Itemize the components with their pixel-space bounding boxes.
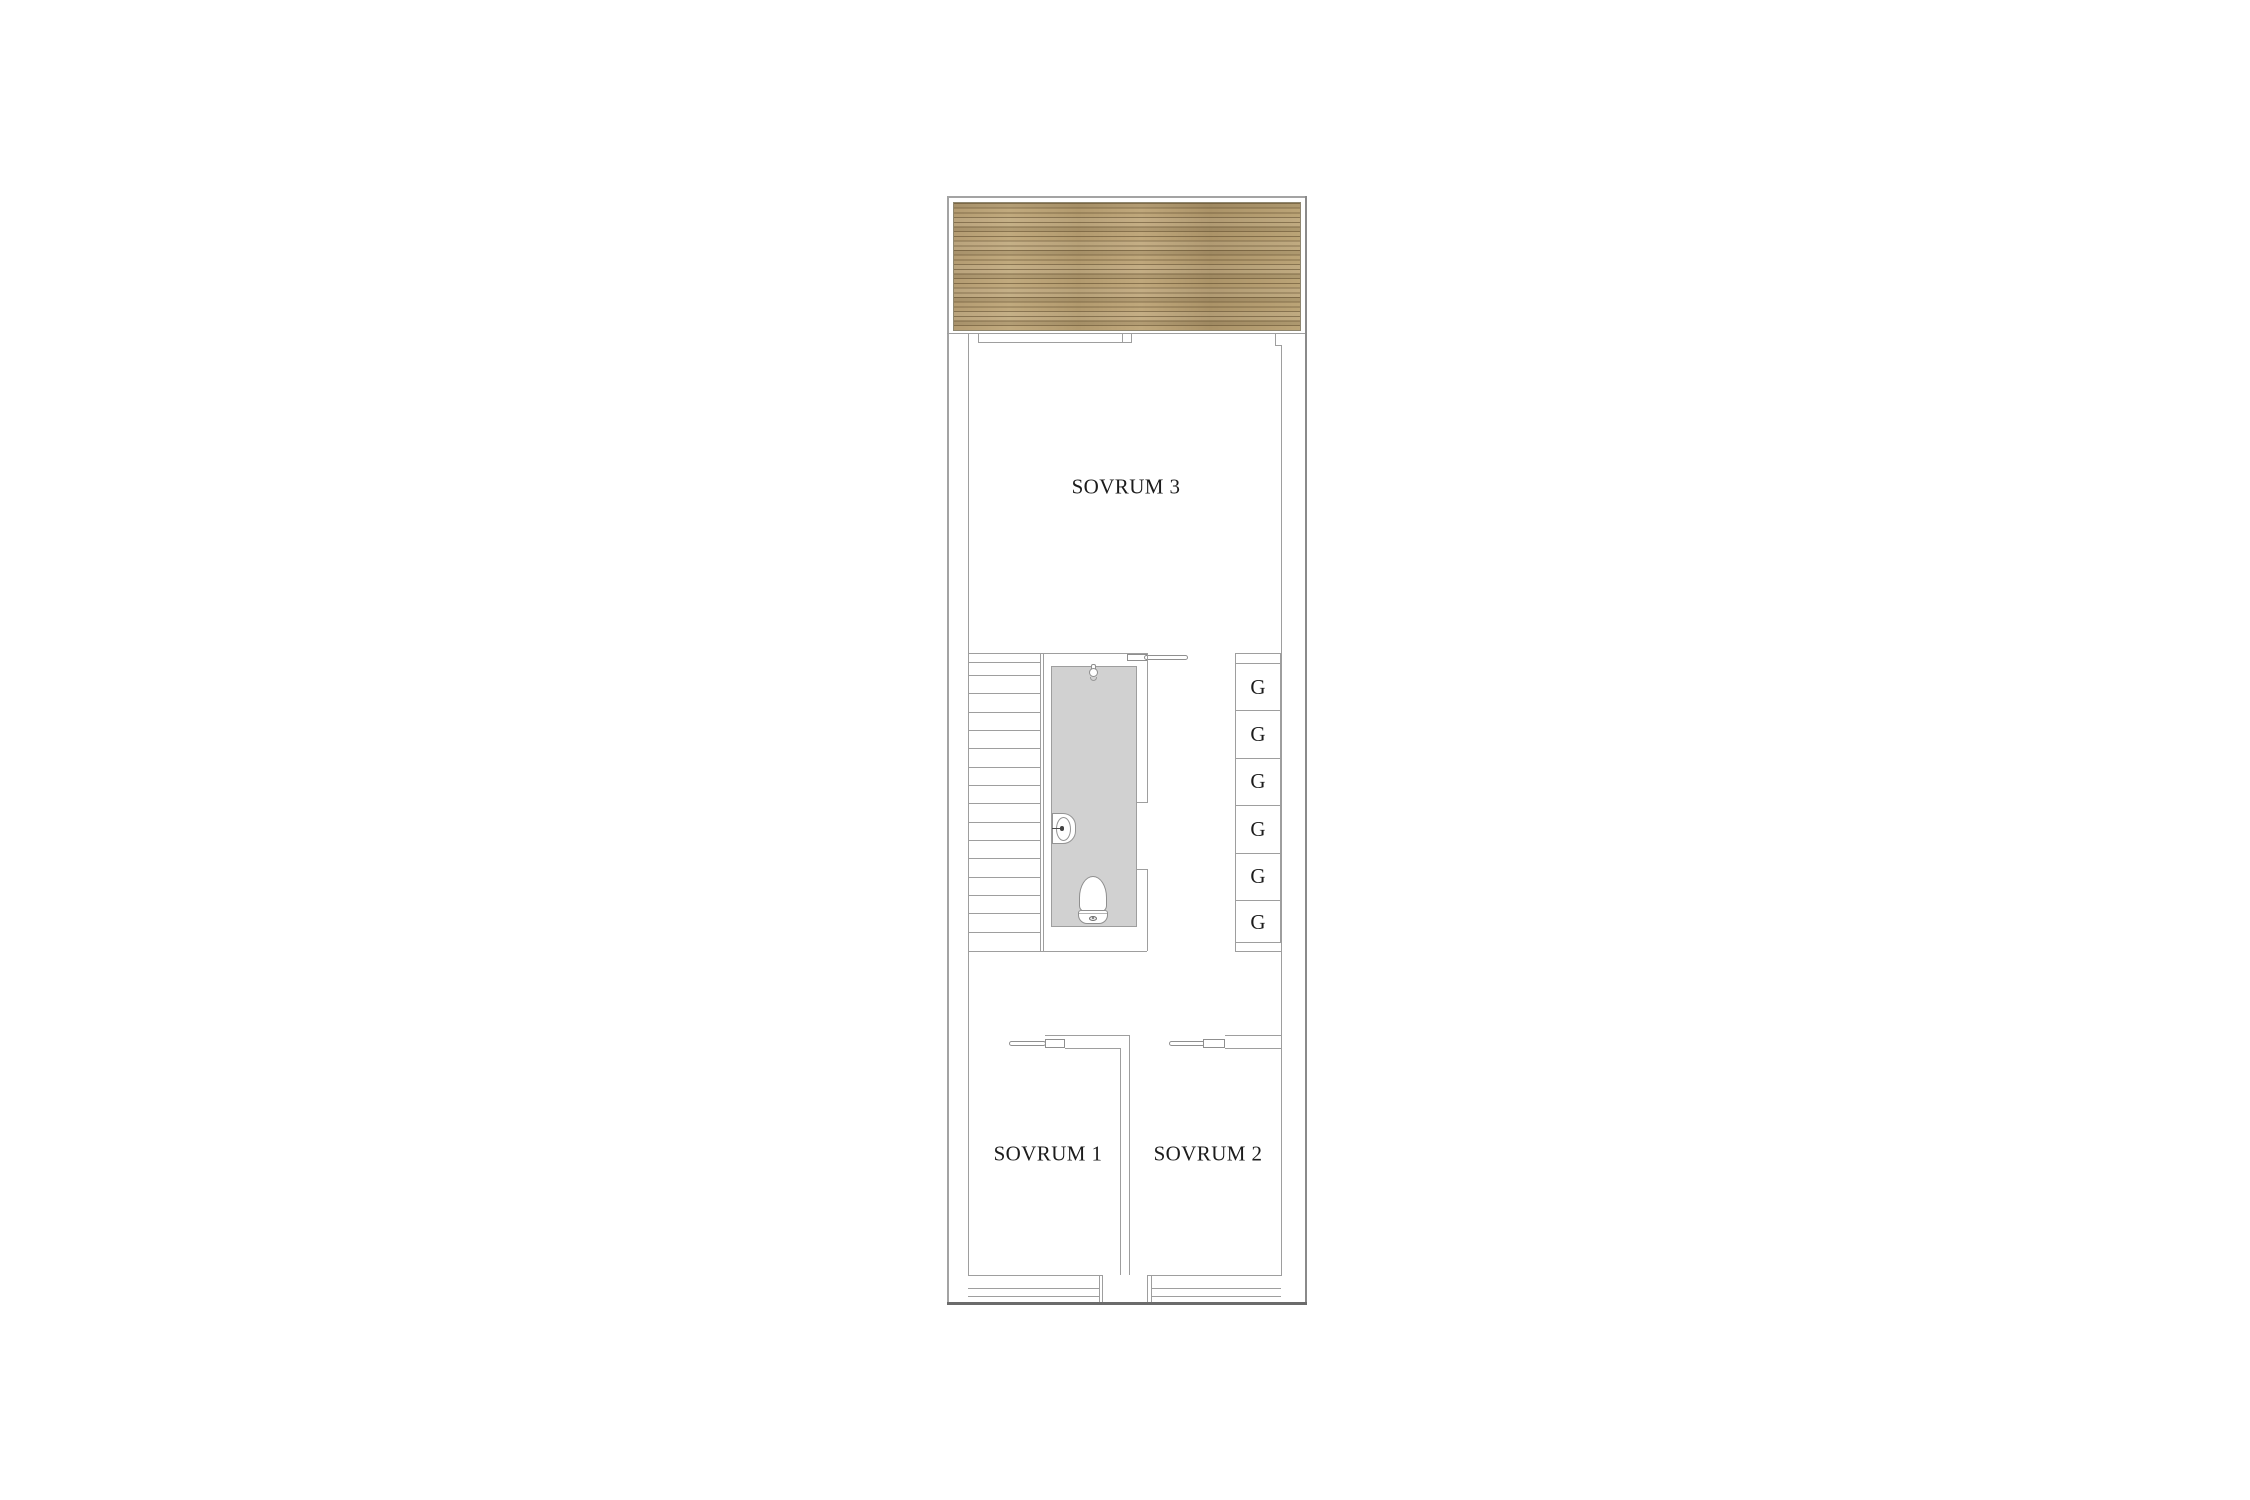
wall-sovrum2-south [1147, 1275, 1281, 1276]
wood-deck [953, 202, 1301, 331]
bathroom-wall-east-lower [1147, 869, 1148, 951]
closet-label: G [1250, 817, 1265, 842]
shower-mixer-symbol [1089, 668, 1098, 677]
window-sovrum1 [968, 1288, 1099, 1289]
window-sovrum2 [1151, 1288, 1282, 1289]
deck-door-track-divider [1122, 333, 1123, 343]
sliding-door-pocket-sovrum2 [1203, 1039, 1225, 1048]
exterior-wall-south [947, 1302, 1307, 1305]
closet-label: G [1250, 864, 1265, 889]
closet-base [1235, 943, 1236, 951]
closet-base [1235, 951, 1281, 952]
window-pier [1102, 1275, 1103, 1302]
stair-tread [968, 748, 1040, 749]
room-label-sovrum2: SOVRUM 2 [1154, 1142, 1263, 1167]
sliding-door-pocket-sovrum1 [1045, 1039, 1066, 1048]
stair-tread [968, 785, 1040, 786]
wall-below-deck [947, 333, 1305, 334]
stair-tread [968, 712, 1040, 713]
closet-cell: G [1236, 758, 1280, 806]
stair-tread [968, 662, 1040, 663]
closet-label: G [1250, 910, 1265, 935]
deck-door-track [978, 342, 1132, 343]
window-sovrum1 [968, 1296, 1099, 1297]
exterior-wall-west [947, 196, 949, 1303]
deck-door-track-end [978, 333, 979, 343]
wall-sovrum1-north-inner [1065, 1048, 1120, 1049]
stair-tread [968, 840, 1040, 841]
closet-cell: G [1236, 900, 1280, 944]
wall-sovrum2-north-inner [1225, 1048, 1281, 1049]
toilet-tank [1079, 913, 1107, 914]
wall-step [1275, 333, 1276, 345]
bathroom-door-jamb [1137, 802, 1148, 803]
stair-tread [968, 822, 1040, 823]
exterior-wall-east [1305, 196, 1307, 1303]
window-sovrum2 [1151, 1296, 1282, 1297]
wall-sovrum1-south [968, 1275, 1102, 1276]
closet-label: G [1250, 769, 1265, 794]
sliding-door-panel-sovrum2 [1169, 1041, 1205, 1046]
window-end [1099, 1275, 1100, 1302]
stair-tread [968, 693, 1040, 694]
wall-sovrum1-north [1045, 1035, 1130, 1036]
exterior-wall-north [947, 196, 1307, 198]
closet-cell: G [1236, 805, 1280, 852]
floor-plan: SOVRUM 3 GGGGGG SOVRUM 1 SOVRUM 2 [0, 0, 2250, 1500]
stair-tread [968, 913, 1040, 914]
closet-label: G [1250, 722, 1265, 747]
wall-sovrum2-north [1225, 1035, 1281, 1036]
staircase [968, 653, 1041, 952]
sliding-door-panel [1144, 655, 1188, 660]
bathroom-wall-west [1043, 653, 1044, 952]
stair-tread [968, 767, 1040, 768]
window-pier [1147, 1275, 1148, 1302]
bathroom-door-jamb [1137, 869, 1148, 870]
window-end [1151, 1275, 1152, 1302]
bathroom-wall-east-upper [1147, 653, 1148, 802]
closet-cell: G [1236, 853, 1280, 901]
closet-label: G [1250, 675, 1265, 700]
closet-cell: G [1236, 710, 1280, 757]
wall-between-bedrooms [1120, 1048, 1121, 1275]
deck-door-track-end [1131, 333, 1132, 343]
closet-column: GGGGGG [1235, 653, 1281, 944]
stair-tread [968, 675, 1040, 676]
stair-tread [968, 895, 1040, 896]
room-label-sovrum3: SOVRUM 3 [1072, 475, 1181, 500]
stair-tread [968, 877, 1040, 878]
stair-tread [968, 730, 1040, 731]
wall-between-bedrooms [1129, 1035, 1130, 1275]
interior-wall-east-face [1281, 345, 1282, 1276]
wall-middle-south [968, 951, 1147, 952]
stair-tread [968, 858, 1040, 859]
stair-tread [968, 932, 1040, 933]
sliding-door-panel-sovrum1 [1009, 1041, 1046, 1046]
stair-tread [968, 803, 1040, 804]
closet-cell: G [1236, 663, 1280, 711]
room-label-sovrum1: SOVRUM 1 [994, 1142, 1103, 1167]
